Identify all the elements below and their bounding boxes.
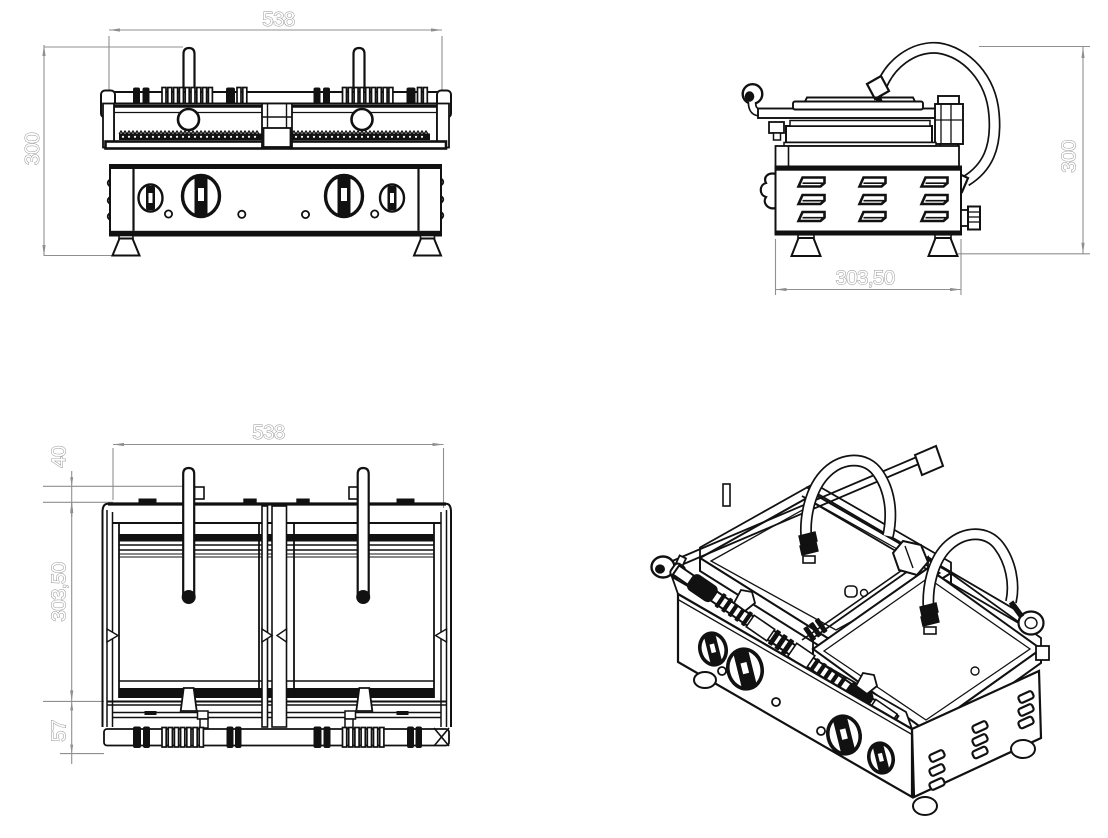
svg-text:300: 300 xyxy=(21,133,44,166)
svg-text:57: 57 xyxy=(48,720,71,742)
svg-text:538: 538 xyxy=(262,8,295,31)
svg-text:303,50: 303,50 xyxy=(835,267,894,290)
svg-text:303,50: 303,50 xyxy=(48,562,71,621)
svg-text:300: 300 xyxy=(1058,140,1081,173)
svg-text:40: 40 xyxy=(48,446,71,468)
svg-text:538: 538 xyxy=(252,421,285,444)
